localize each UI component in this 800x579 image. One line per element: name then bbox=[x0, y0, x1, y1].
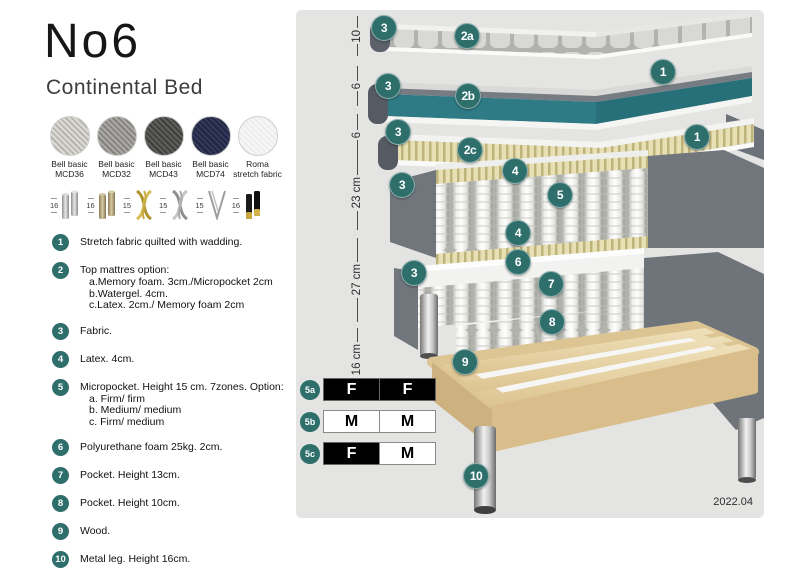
firmness-cell: F bbox=[323, 442, 380, 465]
leg-icon bbox=[59, 190, 83, 220]
callout-badge: 4 bbox=[502, 158, 528, 184]
fabric-swatch: Bell basic MCD36 bbox=[48, 116, 91, 179]
product-title: No6 bbox=[44, 18, 141, 66]
swatch-label-line1: Bell basic bbox=[192, 159, 228, 169]
legend-item: 7 Pocket. Height 13cm. bbox=[52, 467, 292, 484]
parts-legend: 1 Stretch fabric quilted with wadding. 2… bbox=[52, 234, 292, 579]
legend-item: 2 Top mattres option: a.Memory foam. 3cm… bbox=[52, 262, 292, 312]
firmness-cell: F bbox=[379, 378, 436, 401]
legend-text: Wood. bbox=[80, 523, 110, 538]
firmness-row-badge: 5a bbox=[300, 380, 320, 400]
legend-text: Polyurethane foam 25kg. 2cm. bbox=[80, 439, 222, 454]
swatch-circle bbox=[50, 116, 90, 156]
leg-options: 16 16 15 15 15 16 bbox=[50, 190, 265, 220]
legend-item: 1 Stretch fabric quilted with wadding. bbox=[52, 234, 292, 251]
firmness-row-badge: 5b bbox=[300, 412, 320, 432]
leg-icon bbox=[241, 190, 265, 220]
legend-subitem: a.Memory foam. 3cm./Micropocket 2cm bbox=[89, 277, 273, 289]
callout-badge: 2c bbox=[457, 137, 483, 163]
legend-item: 3 Fabric. bbox=[52, 323, 292, 340]
legend-number-badge: 2 bbox=[52, 262, 69, 279]
leg-option: 15 bbox=[123, 190, 156, 220]
legend-text: Stretch fabric quilted with wadding. bbox=[80, 234, 242, 249]
swatch-label-line2: MCD74 bbox=[192, 169, 228, 179]
callout-badge: 5 bbox=[547, 182, 573, 208]
legend-number-badge: 4 bbox=[52, 351, 69, 368]
swatch-label-line2: stretch fabric bbox=[233, 169, 282, 179]
swatch-label: Bell basic MCD74 bbox=[192, 159, 228, 179]
firmness-row-badge: 5c bbox=[300, 444, 320, 464]
legend-number-badge: 9 bbox=[52, 523, 69, 540]
firmness-cell: F bbox=[323, 378, 380, 401]
swatch-circle bbox=[97, 116, 137, 156]
callout-badge: 6 bbox=[505, 249, 531, 275]
swatch-label: Bell basic MCD36 bbox=[51, 159, 87, 179]
leg-icon bbox=[96, 190, 120, 220]
swatch-label-line1: Roma bbox=[233, 159, 282, 169]
callout-badge: 1 bbox=[650, 59, 676, 85]
info-panel: No6 Continental Bed Bell basic MCD36 Bel… bbox=[0, 0, 296, 533]
legend-text: Micropocket. Height 15 cm. 7zones. Optio… bbox=[80, 379, 284, 394]
callout-badge: 8 bbox=[539, 309, 565, 335]
legend-subitem: c. Firm/ medium bbox=[89, 417, 284, 429]
swatch-label: Bell basic MCD32 bbox=[98, 159, 134, 179]
swatch-label-line1: Bell basic bbox=[145, 159, 181, 169]
leg-option: 15 bbox=[195, 190, 228, 220]
swatch-label-line2: MCD36 bbox=[51, 169, 87, 179]
legend-item: 9 Wood. bbox=[52, 523, 292, 540]
legend-text: Pocket. Height 10cm. bbox=[80, 495, 180, 510]
swatch-label-line2: MCD43 bbox=[145, 169, 181, 179]
fabric-swatch: Bell basic MCD32 bbox=[95, 116, 138, 179]
legend-sublist: a. Firm/ firmb. Medium/ mediumc. Firm/ m… bbox=[80, 394, 284, 429]
swatch-circle bbox=[238, 116, 278, 156]
firmness-row: 5c FM bbox=[300, 442, 436, 465]
fabric-swatch: Roma stretch fabric bbox=[236, 116, 279, 179]
leg-option: 16 bbox=[50, 190, 83, 220]
swatch-circle bbox=[191, 116, 231, 156]
firmness-cell: M bbox=[379, 442, 436, 465]
leg-option: 15 bbox=[159, 190, 192, 220]
firmness-table: 5a FF 5b MM 5c FM bbox=[300, 10, 460, 518]
fabric-swatches: Bell basic MCD36 Bell basic MCD32 Bell b… bbox=[48, 116, 279, 179]
callout-badge: 1 bbox=[684, 124, 710, 150]
legend-number-badge: 3 bbox=[52, 323, 69, 340]
legend-number-badge: 10 bbox=[52, 551, 69, 568]
callout-badge: 10 bbox=[463, 463, 489, 489]
legend-text: Latex. 4cm. bbox=[80, 351, 134, 366]
legend-number-badge: 6 bbox=[52, 439, 69, 456]
leg-height-label: 15 bbox=[123, 196, 131, 215]
callout-badge: 4 bbox=[505, 220, 531, 246]
fabric-swatch: Bell basic MCD43 bbox=[142, 116, 185, 179]
legend-number-badge: 5 bbox=[52, 379, 69, 396]
firmness-cells: FF bbox=[324, 378, 436, 401]
legend-text: Top mattres option: bbox=[80, 262, 273, 277]
firmness-cells: FM bbox=[324, 442, 436, 465]
swatch-label-line2: MCD32 bbox=[98, 169, 134, 179]
leg-height-label: 15 bbox=[195, 196, 203, 215]
legend-item: 10 Metal leg. Height 16cm. bbox=[52, 551, 292, 568]
legend-number-badge: 7 bbox=[52, 467, 69, 484]
legend-item: 8 Pocket. Height 10cm. bbox=[52, 495, 292, 512]
legend-number-badge: 1 bbox=[52, 234, 69, 251]
legend-text: Metal leg. Height 16cm. bbox=[80, 551, 190, 566]
leg-height-label: 16 bbox=[232, 196, 240, 215]
firmness-cells: MM bbox=[324, 410, 436, 433]
swatch-label: Roma stretch fabric bbox=[233, 159, 282, 179]
diagram-panel: 10 6 6 23 cm 27 cm 16 cm 32a132b132c3454… bbox=[296, 10, 764, 518]
legend-subitem: c.Latex. 2cm./ Memory foam 2cm bbox=[89, 300, 273, 312]
leg-height-label: 16 bbox=[86, 196, 94, 215]
legend-item: 5 Micropocket. Height 15 cm. 7zones. Opt… bbox=[52, 379, 292, 429]
legend-item: 6 Polyurethane foam 25kg. 2cm. bbox=[52, 439, 292, 456]
legend-item: 4 Latex. 4cm. bbox=[52, 351, 292, 368]
product-subtitle: Continental Bed bbox=[46, 76, 203, 100]
swatch-label: Bell basic MCD43 bbox=[145, 159, 181, 179]
legend-subitem: b. Medium/ medium bbox=[89, 405, 284, 417]
version-label: 2022.04 bbox=[713, 496, 753, 508]
firmness-row: 5b MM bbox=[300, 410, 436, 433]
fabric-swatch: Bell basic MCD74 bbox=[189, 116, 232, 179]
leg-option: 16 bbox=[232, 190, 265, 220]
firmness-cell: M bbox=[379, 410, 436, 433]
swatch-circle bbox=[144, 116, 184, 156]
callout-badge: 7 bbox=[538, 271, 564, 297]
firmness-cell: M bbox=[323, 410, 380, 433]
swatch-label-line1: Bell basic bbox=[98, 159, 134, 169]
legend-text: Pocket. Height 13cm. bbox=[80, 467, 180, 482]
leg-height-label: 16 bbox=[50, 196, 58, 215]
leg-option: 16 bbox=[86, 190, 119, 220]
firmness-row: 5a FF bbox=[300, 378, 436, 401]
leg-icon bbox=[168, 190, 192, 220]
leg-icon bbox=[205, 190, 229, 220]
legend-number-badge: 8 bbox=[52, 495, 69, 512]
legend-text: Fabric. bbox=[80, 323, 112, 338]
legend-sublist: a.Memory foam. 3cm./Micropocket 2cmb.Wat… bbox=[80, 277, 273, 312]
leg-height-label: 15 bbox=[159, 196, 167, 215]
swatch-label-line1: Bell basic bbox=[51, 159, 87, 169]
leg-icon bbox=[132, 190, 156, 220]
